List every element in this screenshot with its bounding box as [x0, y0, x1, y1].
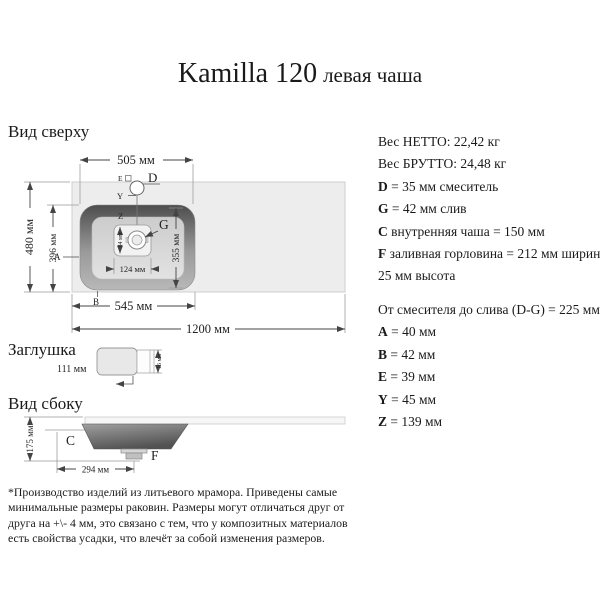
spec-line: Вес НЕТТО: 22,42 кг: [378, 131, 600, 153]
spec-line: A = 40 мм: [378, 321, 600, 343]
manufacturing-footnote: *Производство изделий из литьевого мрамо…: [8, 485, 366, 547]
spec-line: От смесителя до слива (D-G) = 225 мм: [378, 299, 600, 321]
label-d: D: [148, 170, 157, 185]
spec-block-weights-fittings: Вес НЕТТО: 22,42 кг Вес БРУТТО: 24,48 кг…: [378, 131, 600, 288]
dim-drain-offset-label: 294 мм: [82, 465, 109, 475]
spec-line: E = 39 мм: [378, 366, 600, 388]
spec-line: Y = 45 мм: [378, 389, 600, 411]
spec-block-dimensions: От смесителя до слива (D-G) = 225 мм A =…: [378, 299, 600, 433]
plug-flange-shape: [137, 350, 154, 373]
page-title: Kamilla 120левая чаша: [0, 58, 600, 90]
dim-left-width-label: 545 мм: [115, 299, 153, 313]
spec-line: D = 35 мм смеситель: [378, 176, 600, 198]
dim-total-width-label: 1200 мм: [186, 322, 230, 336]
faucet-hole-shape: [130, 181, 144, 195]
spec-line: F заливная горловина = 212 мм ширина,: [378, 243, 600, 265]
spec-line: Z = 139 мм: [378, 411, 600, 433]
plug-body-shape: [97, 348, 137, 375]
dim-drain-width-label: 124 мм: [120, 264, 146, 274]
spec-sheet: Kamilla 120левая чаша Вид сверху: [0, 0, 600, 600]
product-variant: левая чаша: [323, 63, 422, 87]
drain-flange-shape: [121, 449, 147, 453]
dim-bowl-width-label: 505 мм: [117, 153, 155, 167]
dim-side-height-label: 175 мм: [25, 425, 35, 452]
spec-line: Вес БРУТТО: 24,48 кг: [378, 153, 600, 175]
label-f: F: [151, 448, 159, 463]
plug-drawing: 111 мм 16 мм: [0, 340, 200, 392]
dim-plug-height-label: 16 мм: [157, 354, 163, 369]
overflow-mark-shape: [126, 176, 132, 182]
spec-line: G = 42 мм слив: [378, 198, 600, 220]
label-b: B: [93, 297, 99, 307]
dim-bowl-depth-label: 355 мм: [172, 234, 182, 263]
label-g: G: [159, 217, 169, 232]
top-view-heading: Вид сверху: [8, 122, 89, 142]
drain-stub-shape: [126, 453, 142, 459]
spec-line: C внутренняя чаша = 150 мм: [378, 221, 600, 243]
side-view-drawing: C F 175 мм 294 мм: [0, 408, 360, 482]
label-c: C: [66, 433, 75, 448]
bowl-side-shape: [82, 424, 188, 449]
label-y: Y: [117, 191, 123, 201]
dim-counter-height-label: 480 мм: [22, 219, 36, 256]
top-view-drawing: 505 мм 480 мм 396 мм 355 мм E D Y Z: [0, 148, 365, 340]
dim-drain-height-label: 84 мм: [118, 232, 124, 247]
label-a: A: [54, 252, 61, 262]
spec-line: 25 мм высота: [378, 265, 600, 287]
spec-line: B = 42 мм: [378, 344, 600, 366]
dim-plug-width-label: 111 мм: [57, 364, 87, 375]
product-name: Kamilla 120: [178, 58, 317, 89]
label-e: E: [118, 174, 123, 183]
countertop-side-shape: [85, 417, 345, 424]
label-z: Z: [118, 211, 123, 221]
